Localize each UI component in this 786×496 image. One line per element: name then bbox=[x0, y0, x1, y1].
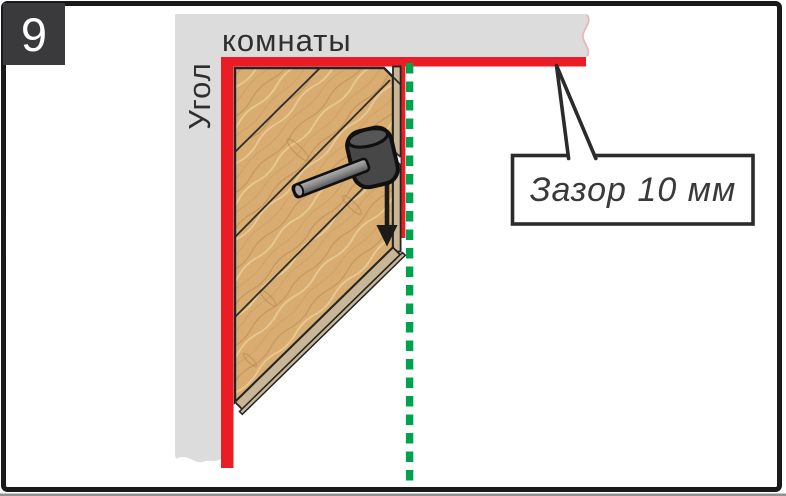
wall-label-horizontal: комнаты bbox=[222, 23, 352, 59]
step-number: 9 bbox=[21, 7, 47, 62]
wall-label-vertical: Угол bbox=[182, 51, 216, 141]
laminate-panels bbox=[228, 60, 408, 410]
diagram-graphics bbox=[0, 0, 786, 496]
red-gap-line-left bbox=[221, 57, 234, 468]
laminate-install-step-diagram: 9 комнаты Угол Зазор 10 мм bbox=[0, 0, 786, 496]
step-number-badge: 9 bbox=[3, 3, 65, 65]
callout-gap-label: Зазор 10 мм bbox=[513, 156, 753, 224]
